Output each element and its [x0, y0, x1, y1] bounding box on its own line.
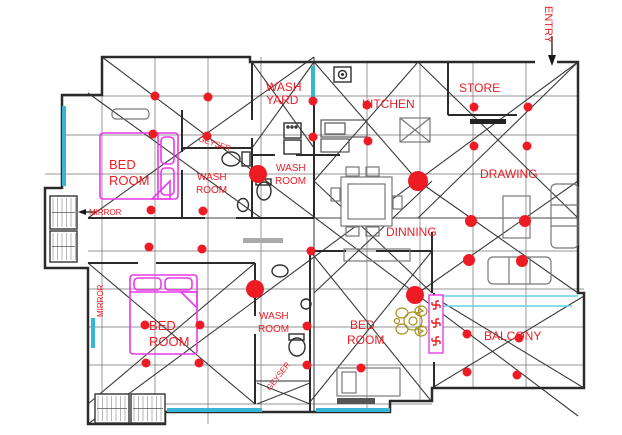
interior-walls: [88, 62, 517, 412]
label-wash-room-3b: ROOM: [258, 324, 289, 335]
vastu-dot: [519, 215, 531, 227]
stove: [334, 67, 351, 82]
washroom-shelf: [243, 238, 283, 243]
floor-plan-svg: ENTRYWASHYARDKITCHENSTOREDRAWINGDINNINGB…: [0, 0, 622, 435]
vastu-dot: [470, 103, 479, 112]
label-store: STORE: [459, 81, 500, 95]
vastu-dot: [406, 286, 424, 304]
vastu-dot: [309, 97, 318, 106]
vastu-dot: [465, 215, 477, 227]
vastu-diagonal-lines: [88, 57, 584, 424]
vastu-dot: [198, 245, 207, 254]
vastu-dot: [364, 137, 373, 146]
vastu-dot: [246, 280, 264, 298]
vastu-dot: [303, 361, 312, 370]
label-wash-room-2b: ROOM: [275, 176, 306, 187]
label-bed-room-2a: BED: [149, 318, 176, 333]
vastu-dot: [147, 206, 156, 215]
floor-plan-page: ENTRYWASHYARDKITCHENSTOREDRAWINGDINNINGB…: [0, 0, 622, 435]
vastu-dot: [199, 207, 208, 216]
vastu-dot: [463, 330, 472, 339]
vastu-dot: [249, 165, 267, 183]
vastu-dot: [204, 93, 213, 102]
store-shelf: [470, 119, 506, 124]
label-entry: ENTRY: [542, 6, 554, 44]
label-wash-yard-2: YARD: [266, 93, 299, 107]
furniture: [112, 109, 578, 404]
label-balcony: BALCONY: [484, 329, 541, 343]
label-mirror-1: MIRROR: [89, 208, 122, 217]
label-geyser-1: GEYSER: [197, 134, 232, 153]
label-mirror-2: MIRROR: [96, 284, 105, 317]
label-wash-room-3a: WASH: [259, 311, 289, 322]
center-axis-lines: [88, 57, 578, 412]
wash-basin: [272, 265, 288, 277]
label-bed-room-2b: ROOM: [149, 334, 189, 349]
vastu-dot: [513, 371, 522, 380]
vastu-dot: [357, 364, 366, 373]
label-bed-room-1b: ROOM: [109, 173, 149, 188]
vastu-dot: [196, 321, 205, 330]
vastu-dot: [151, 92, 160, 101]
label-wash-room-2a: WASH: [276, 163, 306, 174]
label-wash-room-1b: ROOM: [196, 185, 227, 196]
vastu-dot: [524, 103, 533, 112]
toilet: [222, 152, 250, 166]
vastu-dot: [145, 243, 154, 252]
vastu-dot: [149, 130, 158, 139]
vastu-dot: [516, 255, 528, 267]
washing-machine: [284, 123, 301, 154]
toilet: [289, 334, 305, 356]
label-wash-room-1a: WASH: [197, 172, 227, 183]
sofa-vertical: [551, 184, 578, 248]
wardrobes-and-dresser: [50, 196, 165, 423]
pooja-ornament-icon: [395, 306, 428, 336]
vastu-dot: [470, 142, 479, 151]
vastu-dot: [463, 368, 472, 377]
label-bed-room-3a: BED: [350, 318, 375, 332]
vastu-dot: [303, 322, 312, 331]
label-bed-room-3b: ROOM: [347, 333, 384, 347]
label-bed-room-1a: BED: [109, 157, 136, 172]
vastu-dot: [463, 254, 475, 266]
vastu-dot: [142, 359, 151, 368]
vastu-dot: [307, 247, 316, 256]
vastu-dot: [523, 142, 532, 151]
vastu-dot: [408, 171, 428, 191]
label-drawing: DRAWING: [480, 167, 538, 181]
vastu-dot: [309, 133, 318, 142]
label-dinning: DINNING: [386, 225, 437, 239]
label-wash-yard-1: WASH: [266, 80, 302, 94]
kitchen-platform: [400, 118, 430, 142]
label-kitchen: KITCHEN: [362, 97, 415, 111]
balcony-window-lines: [432, 296, 578, 306]
study-desk: [337, 368, 400, 404]
vastu-dot: [195, 359, 204, 368]
